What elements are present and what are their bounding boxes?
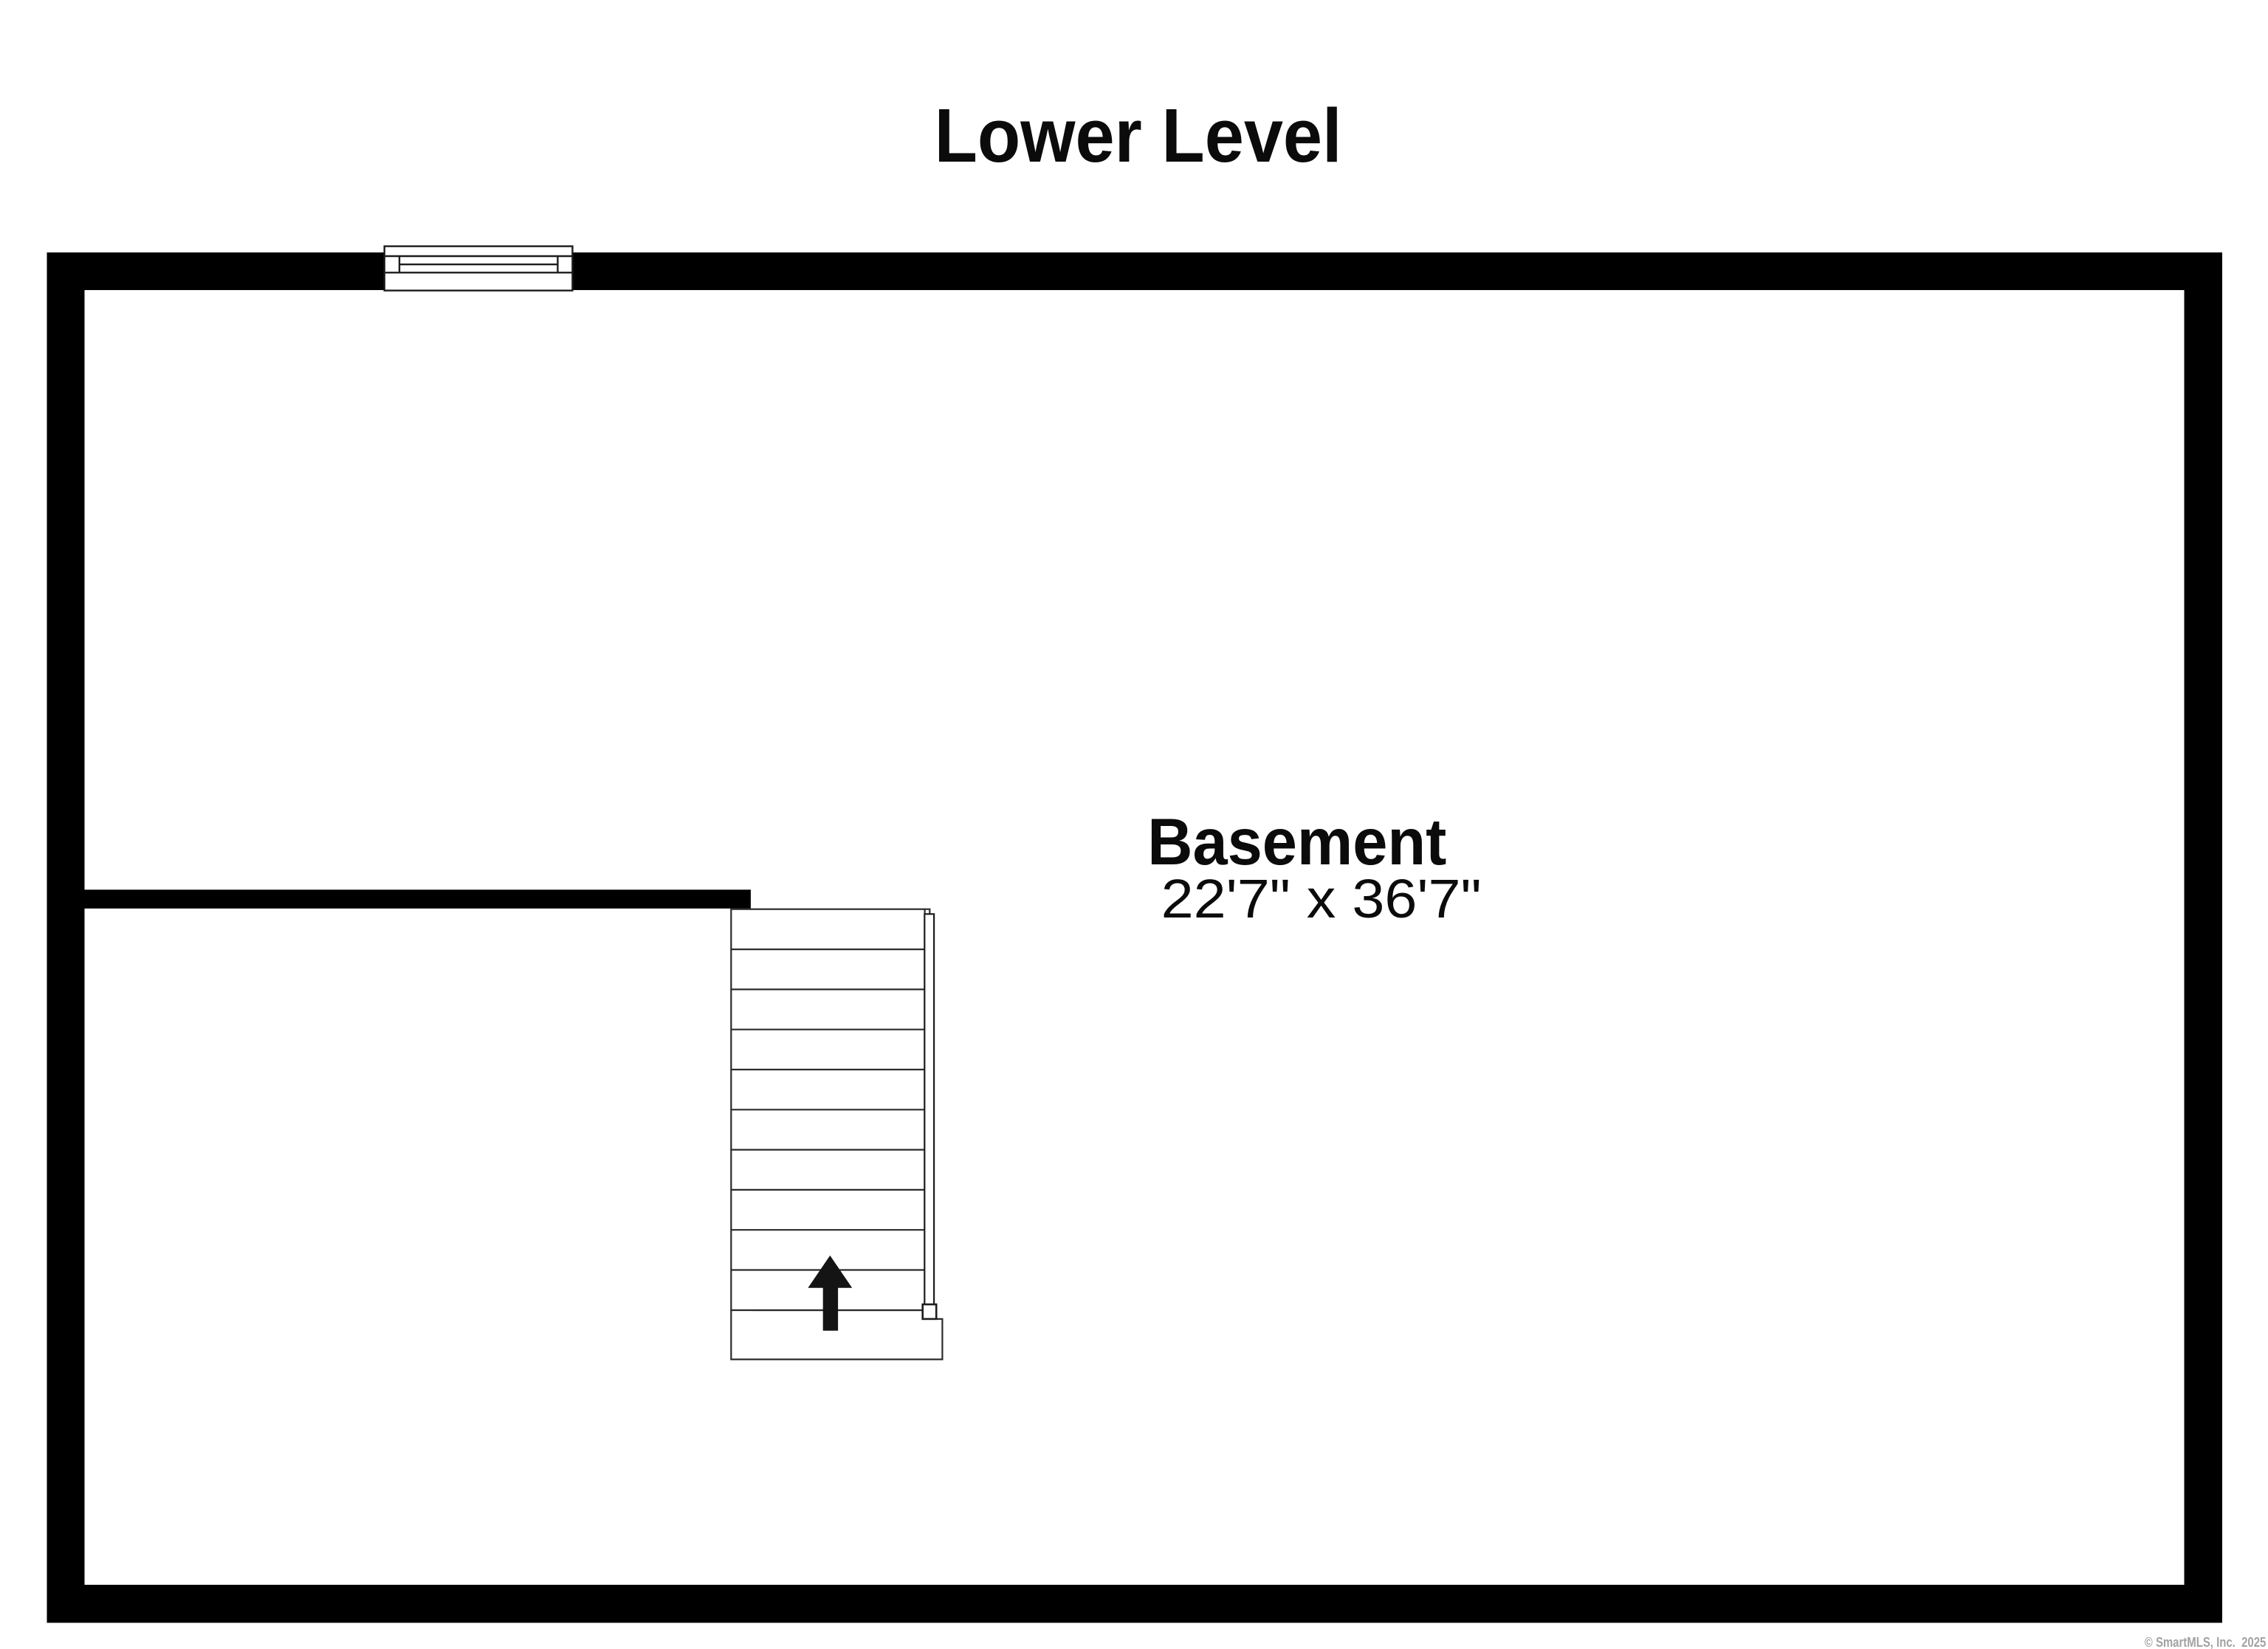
svg-text:Basement: Basement [1147,805,1446,878]
svg-text:Lower Level: Lower Level [935,93,1342,178]
svg-text:22'7" x 36'7": 22'7" x 36'7" [1161,868,1482,929]
svg-text:© SmartMLS, Inc. 2025: © SmartMLS, Inc. 2025 [2145,1634,2267,1649]
